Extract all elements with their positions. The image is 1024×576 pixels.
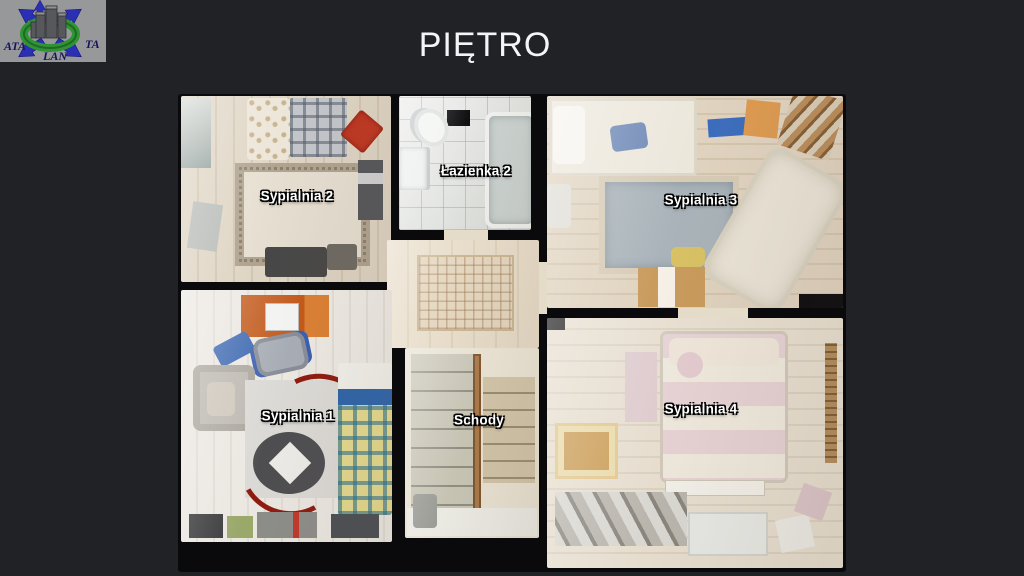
stair-flight-right xyxy=(483,377,535,483)
bed-plaid-blanket xyxy=(290,98,347,157)
pink-rug xyxy=(625,352,657,422)
white-dresser xyxy=(688,512,768,556)
room-label-schody: Schody xyxy=(454,413,504,428)
room-schody: Schody xyxy=(405,348,539,538)
stair-railing xyxy=(473,354,481,512)
white-pillow xyxy=(553,106,585,164)
room-lazienka-2: Łazienka 2 xyxy=(399,96,531,230)
radiator xyxy=(825,343,837,463)
bed-blue-band xyxy=(338,389,392,405)
stair-flight-left xyxy=(411,354,473,512)
floor-plan: Sypialnia 2 Łazienka 2 Sypialnia 3 xyxy=(178,94,846,572)
logo-text-lan: LAN xyxy=(42,49,68,62)
desk-chair xyxy=(671,247,705,267)
dresser-with-mirror xyxy=(555,492,687,546)
room-sypialnia-4: Sypialnia 4 xyxy=(547,318,843,568)
blue-pillow xyxy=(609,122,648,153)
room-sypialnia-3: Sypialnia 3 xyxy=(547,96,843,308)
wall-stub xyxy=(547,318,565,330)
shelf-item xyxy=(331,514,379,538)
storage-box xyxy=(327,244,357,270)
agency-logo: ATA TA LAN xyxy=(0,0,106,62)
room-label-sypialnia-4: Sypialnia 4 xyxy=(665,402,738,417)
shelf-item xyxy=(257,512,317,538)
door-bedroom3-hall xyxy=(539,262,547,314)
hall-rug xyxy=(417,255,514,331)
cabinet xyxy=(775,514,815,553)
logo-text-ata: ATA xyxy=(3,39,26,53)
round-pillow xyxy=(677,352,703,378)
bed xyxy=(338,363,392,515)
wardrobe xyxy=(181,98,211,168)
laptop xyxy=(265,303,299,331)
room-sypialnia-1: Sypialnia 1 xyxy=(181,290,392,542)
door-bedroom3-bedroom4 xyxy=(678,308,748,318)
logo-buildings xyxy=(31,6,66,38)
desk xyxy=(638,267,705,307)
logo-text-ta: TA xyxy=(85,37,100,51)
armchair-cushion xyxy=(207,382,235,416)
dresser xyxy=(358,160,383,220)
hallway xyxy=(387,240,539,348)
bench xyxy=(265,247,327,277)
side-table xyxy=(743,99,781,138)
chair xyxy=(187,201,223,252)
door-bathroom-hall xyxy=(444,230,488,240)
shelf-item xyxy=(189,514,223,538)
room-label-lazienka-2: Łazienka 2 xyxy=(441,164,511,179)
wall-stub xyxy=(799,294,843,308)
room-label-sypialnia-3: Sypialnia 3 xyxy=(665,193,738,208)
page-title: PIĘTRO xyxy=(419,26,552,65)
room-label-sypialnia-2: Sypialnia 2 xyxy=(261,189,334,204)
sink xyxy=(399,147,430,190)
bed-pillow xyxy=(338,363,392,389)
wall-stub xyxy=(447,110,470,126)
chair xyxy=(547,184,571,228)
agency-logo-graphic: ATA TA LAN xyxy=(0,0,106,62)
shelf-item xyxy=(227,516,253,538)
stored-item xyxy=(413,494,437,528)
bed-pillow-section xyxy=(247,98,290,160)
bed-plaid-blanket xyxy=(338,405,392,515)
wooden-chair xyxy=(555,423,618,479)
room-sypialnia-2: Sypialnia 2 xyxy=(181,96,391,282)
room-label-sypialnia-1: Sypialnia 1 xyxy=(262,409,335,424)
office-chair xyxy=(252,330,311,378)
